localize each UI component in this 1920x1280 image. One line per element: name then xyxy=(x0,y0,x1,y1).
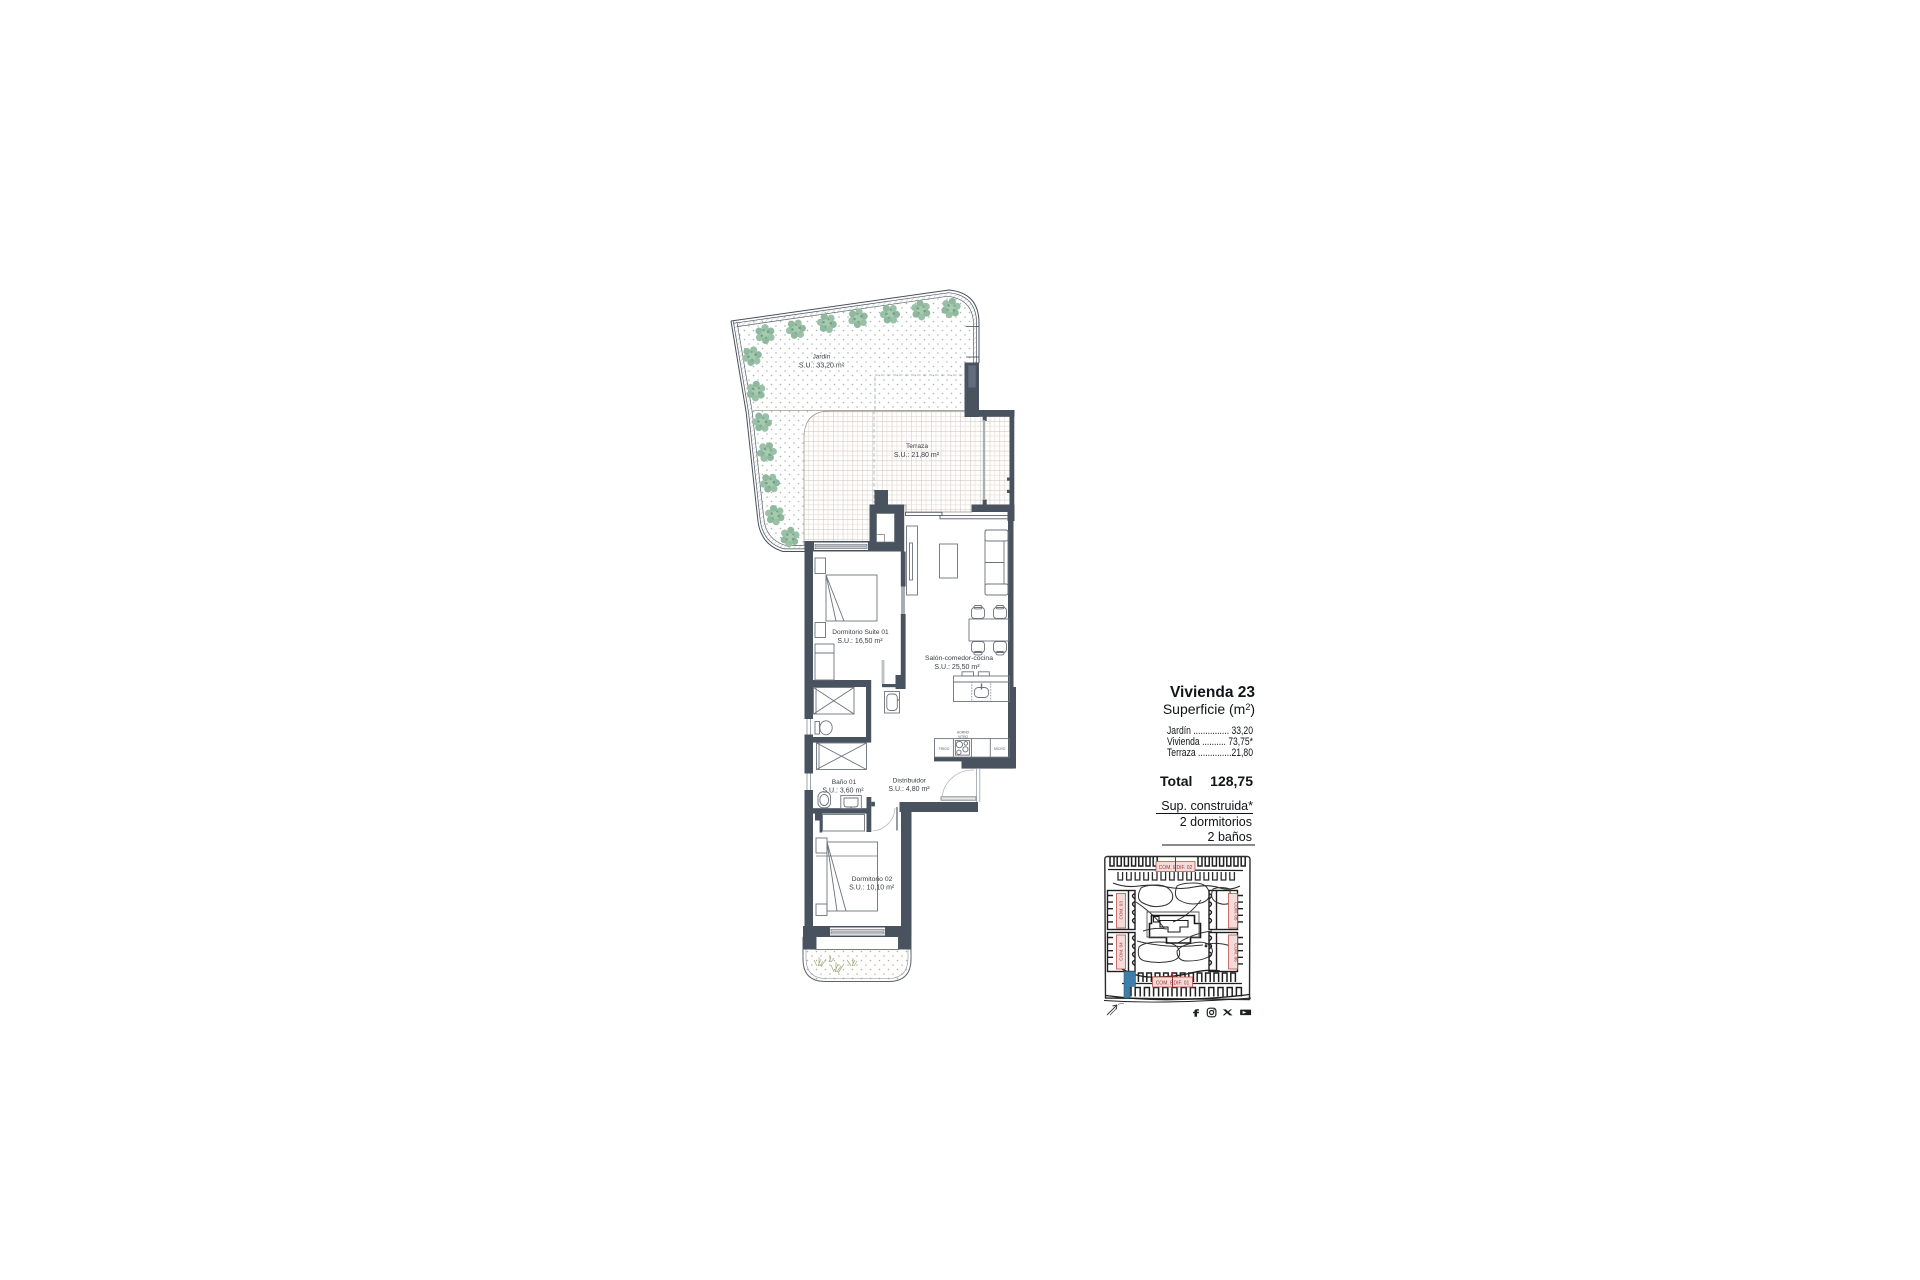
svg-text:COM. 06: COM. 06 xyxy=(1234,943,1239,962)
svg-text:Baño 01: Baño 01 xyxy=(832,779,857,786)
svg-text:Terraza: Terraza xyxy=(906,443,928,450)
svg-text:Distribuidor: Distribuidor xyxy=(893,778,927,785)
svg-text:S.U.: 10,10 m²: S.U.: 10,10 m² xyxy=(849,885,895,892)
svg-text:Sup. construida*: Sup. construida* xyxy=(1161,799,1253,813)
svg-text:FRIGO: FRIGO xyxy=(939,747,950,751)
svg-text:S.U.: 16,50 m²: S.U.: 16,50 m² xyxy=(837,638,883,645)
svg-text:2 dormitorios: 2 dormitorios xyxy=(1180,815,1252,829)
svg-text:Jardín: Jardín xyxy=(813,354,831,361)
svg-text:Terraza ..............21,80: Terraza ..............21,80 xyxy=(1167,747,1253,759)
svg-text:S.U.: 4,80 m²: S.U.: 4,80 m² xyxy=(888,786,930,793)
svg-text:2 baños: 2 baños xyxy=(1208,830,1252,844)
svg-text:COM. 04: COM. 04 xyxy=(1119,942,1124,961)
svg-text:S.U.: 33,20 m²: S.U.: 33,20 m² xyxy=(799,362,845,369)
svg-text:Salón-comedor-cocina: Salón-comedor-cocina xyxy=(925,655,993,662)
svg-text:128,75: 128,75 xyxy=(1210,773,1253,789)
svg-text:MICRO: MICRO xyxy=(994,747,1006,751)
svg-text:COM. 05: COM. 05 xyxy=(1234,902,1239,921)
svg-text:Total: Total xyxy=(1160,773,1192,789)
svg-text:Vivienda 23: Vivienda 23 xyxy=(1170,684,1255,701)
svg-text:VITRO: VITRO xyxy=(958,735,969,739)
svg-text:S.U.: 3,60 m²: S.U.: 3,60 m² xyxy=(822,787,864,794)
svg-text:Dormitorio Suite 01: Dormitorio Suite 01 xyxy=(832,629,889,636)
svg-text:S.U.: 25,50 m²: S.U.: 25,50 m² xyxy=(934,664,980,671)
svg-text:COM. 03: COM. 03 xyxy=(1119,901,1124,920)
svg-text:S.U.: 21,80 m²: S.U.: 21,80 m² xyxy=(894,452,940,459)
svg-text:Dormitorio 02: Dormitorio 02 xyxy=(852,876,893,883)
svg-text:Superficie (m2): Superficie (m2) xyxy=(1163,701,1255,717)
